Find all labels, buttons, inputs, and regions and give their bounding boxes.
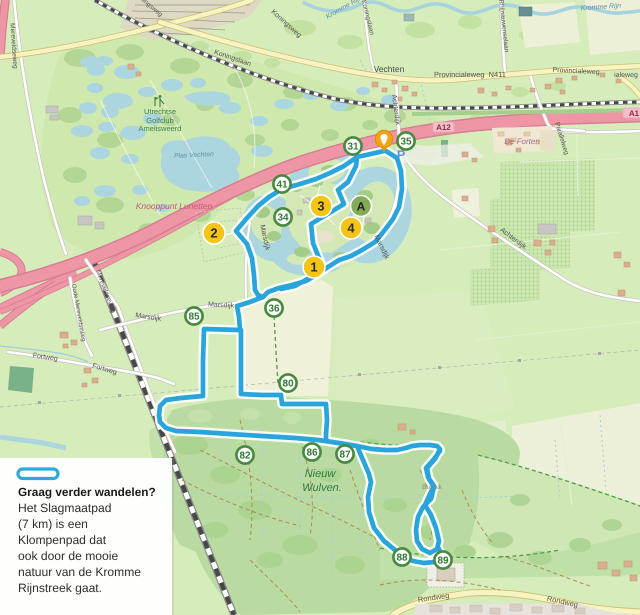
svg-text:41: 41: [276, 180, 288, 191]
svg-text:31: 31: [347, 142, 359, 153]
svg-text:Graag verder wandelen?: Graag verder wandelen?: [18, 485, 156, 499]
svg-text:Wulven.: Wulven.: [302, 482, 342, 494]
svg-text:Vechten: Vechten: [374, 64, 405, 74]
svg-text:Knooppunt Lunetten: Knooppunt Lunetten: [136, 201, 213, 211]
svg-text:Marsdijk: Marsdijk: [208, 300, 235, 309]
svg-text:34: 34: [277, 213, 289, 224]
svg-text:4: 4: [347, 221, 355, 236]
svg-text:Bunnik: Bunnik: [422, 484, 443, 491]
svg-text:natuur van de Kromme: natuur van de Kromme: [18, 565, 141, 579]
svg-text:89: 89: [437, 556, 449, 567]
svg-text:36: 36: [268, 304, 280, 315]
svg-text:82: 82: [239, 451, 251, 462]
svg-text:A1: A1: [629, 109, 640, 118]
svg-text:Rijnstreek gaat.: Rijnstreek gaat.: [18, 581, 102, 595]
svg-text:35: 35: [400, 137, 412, 148]
svg-text:P: P: [397, 148, 405, 162]
svg-text:88: 88: [396, 553, 408, 564]
svg-text:Nieuw: Nieuw: [305, 468, 337, 480]
svg-text:(7 km) is een: (7 km) is een: [18, 517, 88, 531]
svg-text:ialeweg: ialeweg: [614, 71, 638, 79]
svg-text:De Forten: De Forten: [504, 137, 540, 146]
svg-text:1: 1: [310, 260, 317, 275]
svg-text:Provincialeweg N411: Provincialeweg N411: [434, 70, 506, 79]
svg-text:2: 2: [210, 226, 217, 241]
svg-text:Klompenpad dat: Klompenpad dat: [18, 533, 107, 547]
svg-text:3: 3: [317, 199, 324, 214]
svg-text:A12: A12: [436, 123, 451, 132]
svg-text:A: A: [357, 200, 366, 214]
svg-text:85: 85: [188, 312, 200, 323]
svg-text:Het Slagmaatpad: Het Slagmaatpad: [18, 501, 111, 515]
svg-text:ook door de mooie: ook door de mooie: [18, 549, 118, 563]
svg-text:Utrechtse: Utrechtse: [144, 107, 176, 116]
svg-text:87: 87: [339, 450, 351, 461]
svg-text:Amelisweerd: Amelisweerd: [139, 124, 182, 133]
svg-text:80: 80: [282, 379, 294, 390]
svg-text:86: 86: [306, 448, 318, 459]
